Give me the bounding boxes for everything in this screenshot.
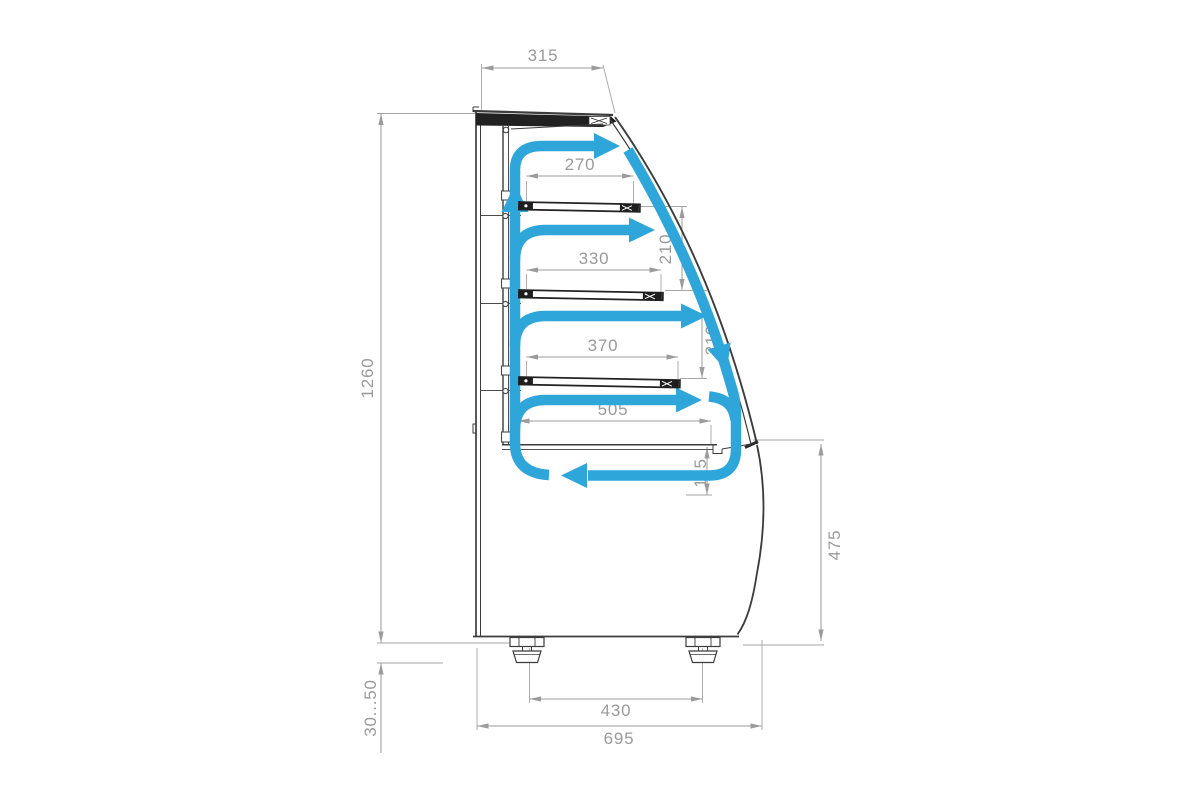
bracket-screw [503, 213, 508, 218]
dim-shelf1-width: 270 [527, 155, 634, 205]
ext-line [603, 65, 615, 113]
dim-foot-adjust-text: 30...50 [361, 679, 380, 737]
adjustable-foot-rear [510, 638, 544, 663]
dim-foot-span-text: 430 [601, 701, 632, 720]
dim-overall-height-text: 1260 [358, 357, 377, 398]
shelf-discharge-1-arrowhead [629, 218, 655, 243]
dim-shelf2-width: 330 [527, 249, 662, 292]
foot-stem [699, 647, 708, 652]
foot-bracket [510, 638, 544, 647]
dim-foot-span: 430 [530, 648, 703, 720]
shelf-2 [519, 290, 663, 300]
bracket-screw [503, 301, 508, 306]
dim-overall-height: 1260 [358, 114, 512, 644]
top-discharge-arrowhead [594, 133, 620, 159]
base-front-curve [738, 445, 764, 635]
dim-shelf3-width-text: 370 [588, 336, 619, 355]
shelf-discharge-3-arrowhead [676, 388, 702, 413]
shelf-1 [519, 202, 640, 212]
deck-end-cap [713, 445, 722, 454]
panel-screw [503, 127, 509, 133]
dim-shelf1-width-text: 270 [565, 155, 596, 174]
shelf-rail [519, 377, 680, 388]
dim-top-width: 315 [482, 46, 616, 113]
dim-top-width-text: 315 [528, 46, 559, 65]
dim-base-height-text: 475 [825, 530, 844, 561]
dim-overall-depth-text: 695 [604, 729, 635, 748]
dim-foot-adjust: 30...50 [361, 663, 443, 753]
dim-shelf3-width: 370 [527, 336, 679, 379]
return-arrowhead [561, 463, 587, 488]
adjustable-foot-front [686, 638, 720, 663]
foot-pad [689, 651, 717, 663]
shelf-discharge-3 [515, 400, 676, 430]
foot-bracket [686, 638, 720, 647]
display-case-section-drawing: 315 1260 30...50 270 330 [0, 0, 1200, 800]
bracket-screw [503, 388, 508, 393]
airflow [502, 133, 737, 488]
shelf-discharge-1 [515, 230, 629, 260]
foot-pad [513, 651, 541, 663]
dim-shelf2-width-text: 330 [579, 249, 610, 268]
shelf-3 [519, 377, 680, 388]
dim-base-height: 475 [743, 440, 844, 645]
shelf-rail [519, 290, 663, 300]
foot-stem [523, 647, 532, 652]
technical-drawing-canvas: 315 1260 30...50 270 330 [0, 0, 1200, 800]
return-bend [709, 397, 736, 421]
